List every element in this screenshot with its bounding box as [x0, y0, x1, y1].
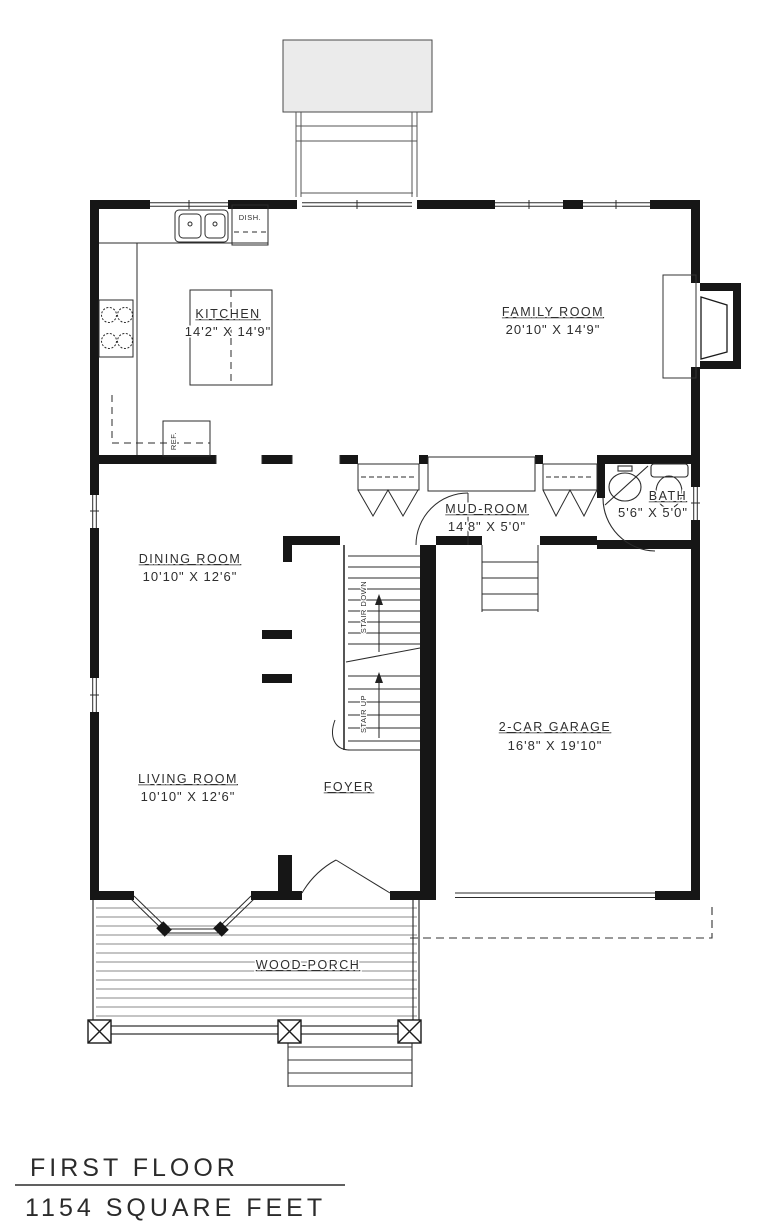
stoop-landing — [283, 40, 432, 112]
family-room-window — [583, 200, 650, 209]
dishwasher-box — [232, 205, 268, 245]
cabinet-dashed-line — [112, 395, 210, 443]
area-title: 1154 SQUARE FEET — [25, 1194, 326, 1222]
back-door — [297, 200, 417, 209]
kitchen-sink-icon — [175, 210, 228, 242]
fireplace — [663, 275, 741, 378]
stair-curtail — [333, 720, 350, 750]
stair-up-label: STAIR UP — [359, 695, 368, 733]
porch-post — [398, 1020, 421, 1043]
bath-label: BATH — [649, 489, 687, 503]
bath-sink-icon — [609, 466, 641, 501]
bay-window — [122, 891, 263, 937]
stair-direction-arrows — [375, 594, 383, 738]
porch-posts — [88, 1020, 421, 1043]
porch-label: WOOD-PORCH — [256, 958, 361, 972]
foyer-label: FOYER — [324, 780, 375, 794]
bifold-door-icon — [358, 490, 418, 516]
kitchen-label: KITCHEN — [195, 307, 260, 321]
bath-window — [691, 487, 700, 520]
living-room-window — [90, 678, 99, 712]
living-room-dims: 10'10" X 12'6" — [141, 789, 236, 804]
porch-post — [278, 1020, 301, 1043]
front-door — [302, 860, 390, 893]
bifold-door-icon — [543, 490, 597, 516]
porch-post — [88, 1020, 111, 1043]
dining-room-label: DINING ROOM — [139, 552, 242, 566]
closet — [358, 464, 419, 516]
front-steps — [288, 1034, 412, 1087]
garage-label: 2-CAR GARAGE — [499, 720, 611, 734]
stove-icon — [99, 300, 133, 357]
stair-down-label: STAIR DOWN — [359, 581, 368, 633]
kitchen-window — [150, 200, 228, 209]
corner-counter — [605, 466, 648, 505]
floor-plan-drawing: KITCHEN 14'2" X 14'9" FAMILY ROOM 20'10"… — [0, 0, 780, 1226]
dishwasher-label: DISH. — [239, 213, 262, 222]
mud-room-label: MUD-ROOM — [445, 502, 529, 516]
kitchen-dims: 14'2" X 14'9" — [185, 324, 271, 339]
staircase — [333, 545, 420, 750]
mud-room-dims: 14'8" X 5'0" — [448, 519, 526, 534]
garage-apron-dashed — [410, 905, 712, 938]
floor-title: FIRST FLOOR — [30, 1154, 239, 1182]
dining-room-window — [90, 495, 99, 528]
family-room-window — [495, 200, 563, 209]
closet — [543, 464, 597, 516]
living-room-label: LIVING ROOM — [138, 772, 238, 786]
garage-dims: 16'8" X 19'10" — [508, 738, 603, 753]
refrigerator-label: REF. — [169, 432, 178, 450]
floor-plan-sheet: KITCHEN 14'2" X 14'9" FAMILY ROOM 20'10"… — [0, 0, 780, 1226]
firebox-icon — [701, 297, 727, 359]
arrow-up-icon — [375, 672, 383, 683]
family-room-opening — [428, 457, 535, 491]
back-stoop — [283, 40, 432, 197]
room-labels: KITCHEN 14'2" X 14'9" FAMILY ROOM 20'10"… — [138, 305, 688, 972]
garage-steps — [482, 545, 538, 612]
hearth — [663, 275, 696, 378]
stair-break-line — [346, 648, 420, 662]
bath-dims: 5'6" X 5'0" — [618, 505, 688, 520]
dining-room-dims: 10'10" X 12'6" — [143, 569, 238, 584]
family-room-label: FAMILY ROOM — [502, 305, 604, 319]
family-room-dims: 20'10" X 14'9" — [506, 322, 601, 337]
title-block: FIRST FLOOR 1154 SQUARE FEET — [15, 1154, 345, 1222]
fixture-labels: DISH. REF. STAIR DOWN STAIR UP — [169, 213, 368, 733]
garage-door — [455, 893, 655, 898]
